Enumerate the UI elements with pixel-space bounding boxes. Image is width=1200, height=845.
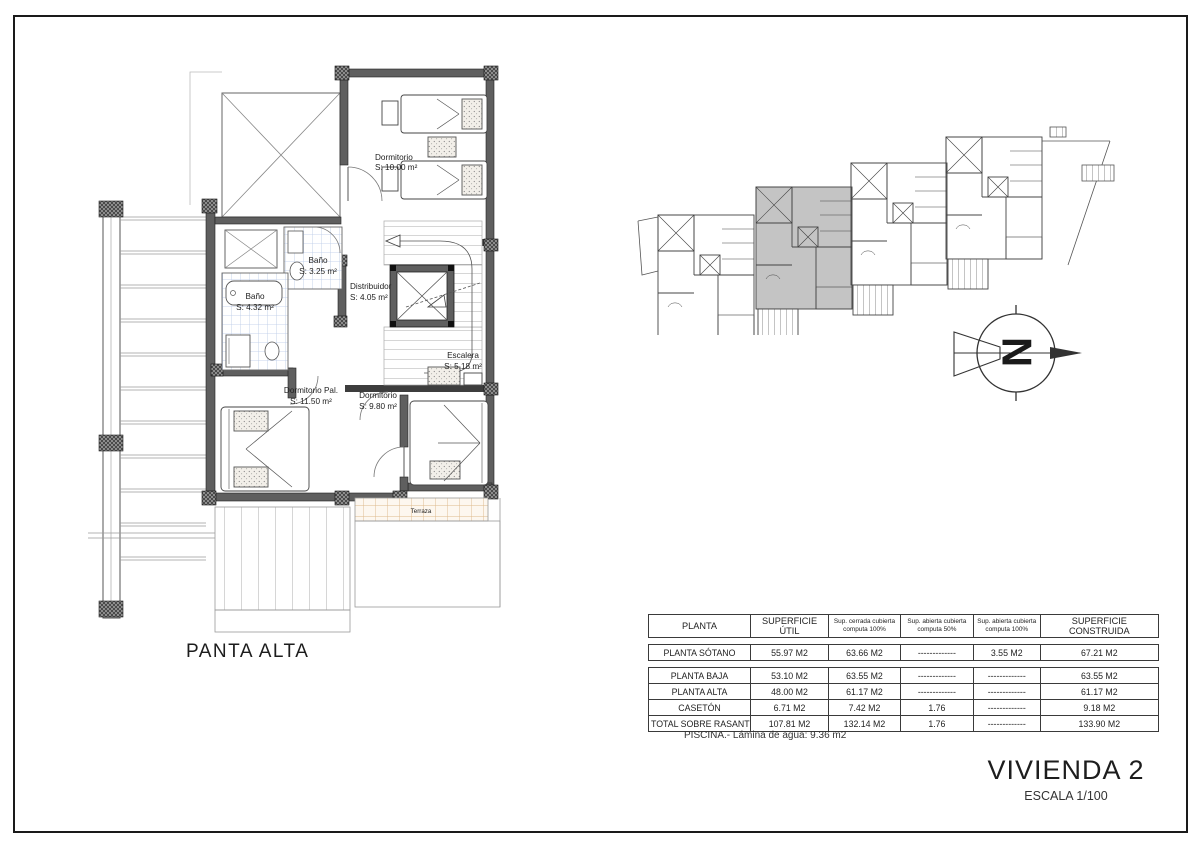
table-header-cell: PLANTA bbox=[649, 615, 751, 638]
pergola-post bbox=[99, 201, 123, 217]
table-cell: 55.97 M2 bbox=[751, 645, 829, 661]
north-arrow: N bbox=[948, 296, 1088, 408]
table-row: PLANTA BAJA 53.10 M2 63.55 M2 ----------… bbox=[649, 668, 1159, 684]
room-label-dormitorio-top: Dormitorio bbox=[375, 153, 413, 162]
room-area-distribuidor: S: 4.05 m² bbox=[350, 293, 388, 302]
table-cell: 48.00 M2 bbox=[751, 684, 829, 700]
room-area-bano-small: S: 3.25 m² bbox=[299, 267, 337, 276]
pergola-post bbox=[99, 601, 123, 617]
door-arc bbox=[348, 167, 382, 201]
room-label-distribuidor: Distribuidor bbox=[350, 282, 392, 291]
table-cell: ------------- bbox=[973, 700, 1040, 716]
bathroom-large bbox=[222, 273, 288, 370]
table-cell: 3.55 M2 bbox=[973, 645, 1040, 661]
areas-table-sotano: PLANTA SÓTANO 55.97 M2 63.66 M2 --------… bbox=[648, 644, 1159, 661]
plan-title: PANTA ALTA bbox=[186, 641, 309, 663]
room-area-escalera: S: 5.18 m² bbox=[444, 362, 482, 371]
table-cell: PLANTA ALTA bbox=[649, 684, 751, 700]
drawing-sheet: Dormitorio S: 10.00 m² Baño S: 3.25 m² B… bbox=[0, 0, 1200, 845]
table-cell: ------------- bbox=[900, 684, 973, 700]
room-label-escalera: Escalera bbox=[447, 351, 479, 360]
table-header-cell: Sup. abierta cubierta computa 100% bbox=[973, 615, 1040, 638]
table-row: PLANTA SÓTANO 55.97 M2 63.66 M2 --------… bbox=[649, 645, 1159, 661]
table-cell: 53.10 M2 bbox=[751, 668, 829, 684]
table-header-cell: Sup. abierta cubierta computa 50% bbox=[900, 615, 973, 638]
room-area-dormitorio-top: S: 10.00 m² bbox=[375, 163, 418, 172]
room-area-bano-large: S: 4.32 m² bbox=[236, 303, 274, 312]
north-label: N bbox=[994, 337, 1041, 367]
roof-edge-line bbox=[190, 72, 222, 205]
table-cell: 63.66 M2 bbox=[829, 645, 901, 661]
areas-table: PLANTA SUPERFICIE ÚTIL Sup. cerrada cubi… bbox=[648, 614, 1159, 732]
room-label-bano-small: Baño bbox=[308, 256, 328, 265]
site-boundary-lines bbox=[638, 127, 1114, 275]
table-row: PLANTA ALTA 48.00 M2 61.17 M2 ----------… bbox=[649, 684, 1159, 700]
stairwell bbox=[384, 221, 482, 385]
table-cell: ------------- bbox=[900, 645, 973, 661]
table-row: CASETÓN 6.71 M2 7.42 M2 1.76 -----------… bbox=[649, 700, 1159, 716]
site-unit-3 bbox=[851, 163, 947, 315]
room-label-dormitorio-2: Dormitorio bbox=[359, 391, 397, 400]
table-cell: PLANTA SÓTANO bbox=[649, 645, 751, 661]
bedroom-top-furniture bbox=[382, 95, 487, 199]
project-title: VIVIENDA 2 bbox=[950, 755, 1182, 786]
table-header-cell: Sup. cerrada cubierta computa 100% bbox=[829, 615, 901, 638]
table-cell: 133.90 M2 bbox=[1040, 716, 1158, 732]
table-cell: 63.55 M2 bbox=[1040, 668, 1158, 684]
pergola-side-patio bbox=[99, 201, 206, 618]
table-cell: 1.76 bbox=[900, 716, 973, 732]
room-label-terraza: Terraza bbox=[411, 508, 432, 515]
table-cell: PLANTA BAJA bbox=[649, 668, 751, 684]
table-cell: ------------- bbox=[973, 716, 1040, 732]
areas-table-header: PLANTA SUPERFICIE ÚTIL Sup. cerrada cubi… bbox=[648, 614, 1159, 638]
table-cell: 61.17 M2 bbox=[829, 684, 901, 700]
room-label-bano-large: Baño bbox=[245, 292, 265, 301]
table-cell: 6.71 M2 bbox=[751, 700, 829, 716]
site-unit-4 bbox=[946, 137, 1042, 289]
areas-table-body: PLANTA BAJA 53.10 M2 63.55 M2 ----------… bbox=[648, 667, 1159, 732]
highlighted-unit-vivienda-2 bbox=[756, 187, 852, 309]
table-header-cell: SUPERFICIE CONSTRUIDA bbox=[1040, 615, 1158, 638]
compass-arrowhead bbox=[1050, 347, 1082, 359]
door-arc bbox=[374, 447, 404, 477]
pergola-post bbox=[99, 435, 123, 451]
table-cell: CASETÓN bbox=[649, 700, 751, 716]
table-cell: 61.17 M2 bbox=[1040, 684, 1158, 700]
table-cell: 67.21 M2 bbox=[1040, 645, 1158, 661]
table-cell: 9.18 M2 bbox=[1040, 700, 1158, 716]
room-label-dormitorio-pal: Dormitorio Pal. bbox=[284, 386, 338, 395]
pool-note: PISCINA.- Lámina de agua: 9.36 m2 bbox=[684, 730, 846, 741]
project-scale: ESCALA 1/100 bbox=[950, 789, 1182, 803]
table-cell: 63.55 M2 bbox=[829, 668, 901, 684]
room-area-dormitorio-2: S: 9.80 m² bbox=[359, 402, 397, 411]
table-cell: ------------- bbox=[900, 668, 973, 684]
table-cell: ------------- bbox=[973, 668, 1040, 684]
table-cell: 7.42 M2 bbox=[829, 700, 901, 716]
void-open-to-below bbox=[222, 93, 340, 217]
table-header-cell: SUPERFICIE ÚTIL bbox=[751, 615, 829, 638]
closet-void bbox=[225, 230, 277, 268]
room-area-dormitorio-pal: S: 11.50 m² bbox=[290, 397, 332, 406]
table-cell: ------------- bbox=[973, 684, 1040, 700]
master-bedroom-furniture bbox=[221, 407, 309, 491]
table-cell: 1.76 bbox=[900, 700, 973, 716]
title-block: VIVIENDA 2 ESCALA 1/100 bbox=[950, 755, 1182, 803]
site-unit-1 bbox=[658, 215, 754, 335]
floor-plan-drawing: Dormitorio S: 10.00 m² Baño S: 3.25 m² B… bbox=[88, 55, 528, 640]
